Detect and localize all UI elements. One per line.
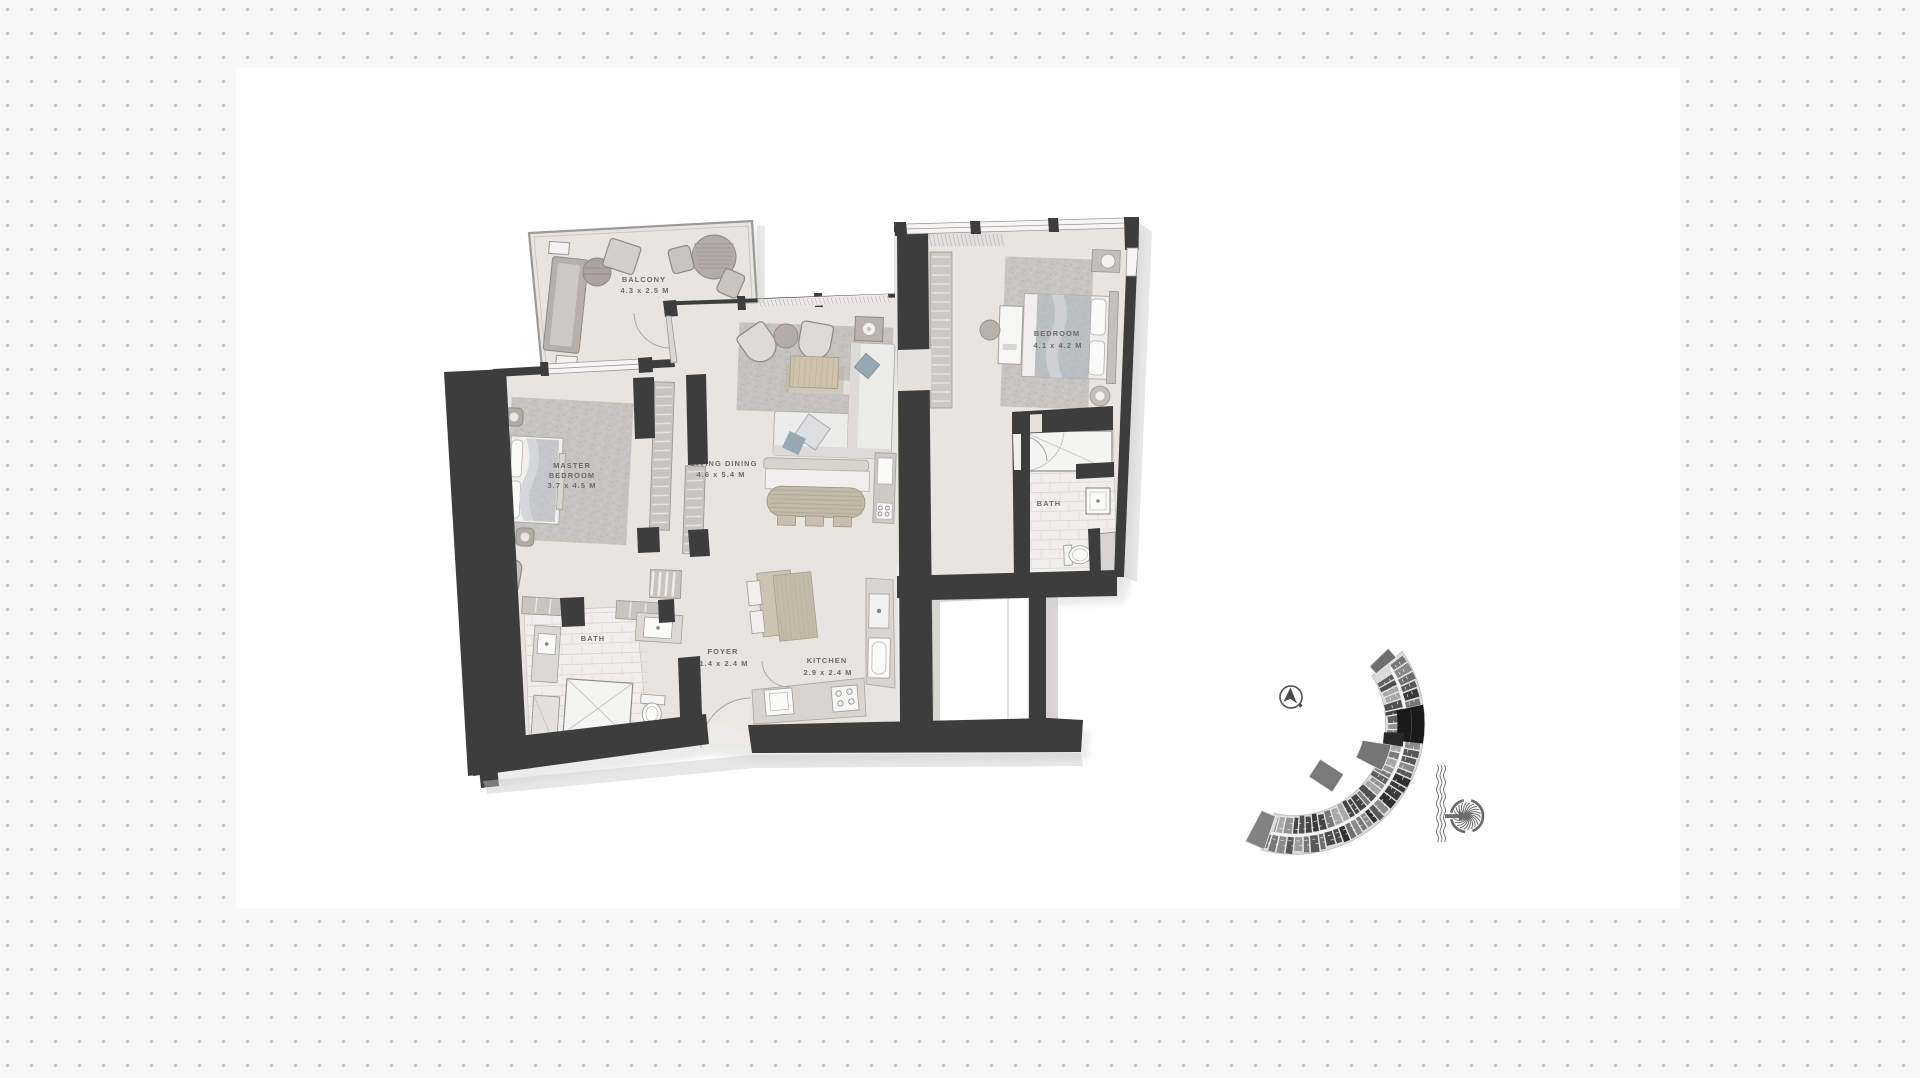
- svg-text:BALCONY: BALCONY: [622, 275, 666, 284]
- svg-text:4.3 x 2.5 M: 4.3 x 2.5 M: [620, 286, 669, 295]
- svg-text:4.1 x 4.2 M: 4.1 x 4.2 M: [1033, 341, 1082, 350]
- svg-text:4.6 x 5.4 M: 4.6 x 5.4 M: [696, 470, 745, 479]
- svg-text:BATH: BATH: [1037, 499, 1061, 508]
- svg-text:FOYER: FOYER: [708, 647, 739, 656]
- svg-text:1.4 x 2.4 M: 1.4 x 2.4 M: [699, 659, 748, 668]
- svg-text:2.9 x 2.4 M: 2.9 x 2.4 M: [803, 668, 852, 677]
- svg-text:3.7 x 4.5 M: 3.7 x 4.5 M: [547, 481, 596, 490]
- svg-text:MASTER: MASTER: [553, 461, 591, 470]
- svg-text:KITCHEN: KITCHEN: [807, 656, 848, 665]
- svg-text:BATH: BATH: [581, 634, 605, 643]
- svg-text:BEDROOM: BEDROOM: [549, 471, 595, 480]
- svg-text:BEDROOM: BEDROOM: [1034, 329, 1080, 338]
